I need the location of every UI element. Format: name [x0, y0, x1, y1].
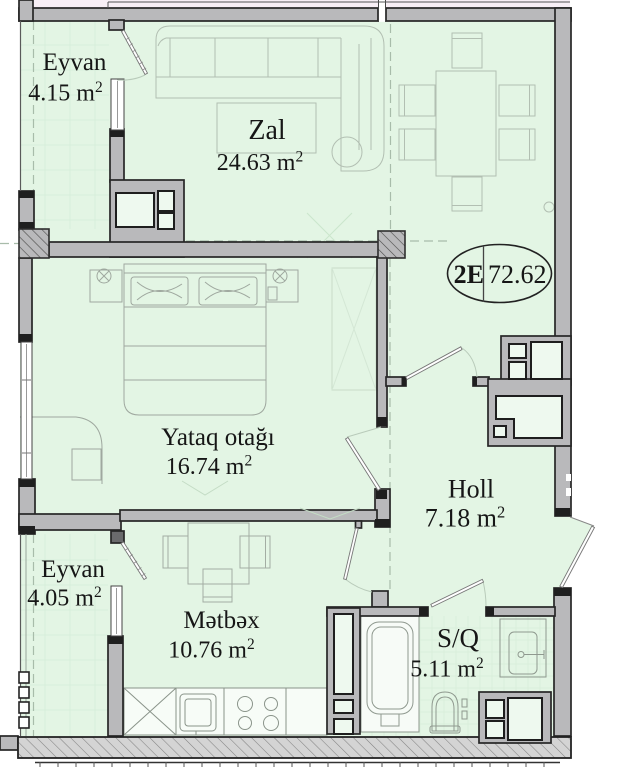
svg-text:2E: 2E: [454, 260, 484, 289]
svg-text:Zal: Zal: [248, 115, 286, 146]
svg-text:5.11 m2: 5.11 m2: [410, 655, 484, 683]
svg-text:Eyvan: Eyvan: [43, 49, 107, 76]
svg-text:72.62: 72.62: [488, 260, 547, 289]
svg-text:Holl: Holl: [448, 475, 494, 504]
svg-text:Yataq otağı: Yataq otağı: [161, 424, 274, 451]
svg-text:4.05 m2: 4.05 m2: [27, 584, 101, 612]
svg-text:4.15 m2: 4.15 m2: [28, 79, 102, 107]
svg-text:Mətbəx: Mətbəx: [183, 607, 260, 634]
svg-text:7.18 m2: 7.18 m2: [425, 503, 505, 533]
svg-text:16.74 m2: 16.74 m2: [166, 453, 252, 481]
svg-text:S/Q: S/Q: [437, 623, 480, 653]
svg-text:10.76 m2: 10.76 m2: [168, 636, 254, 664]
svg-text:24.63 m2: 24.63 m2: [217, 149, 303, 177]
svg-text:Eyvan: Eyvan: [41, 556, 105, 583]
